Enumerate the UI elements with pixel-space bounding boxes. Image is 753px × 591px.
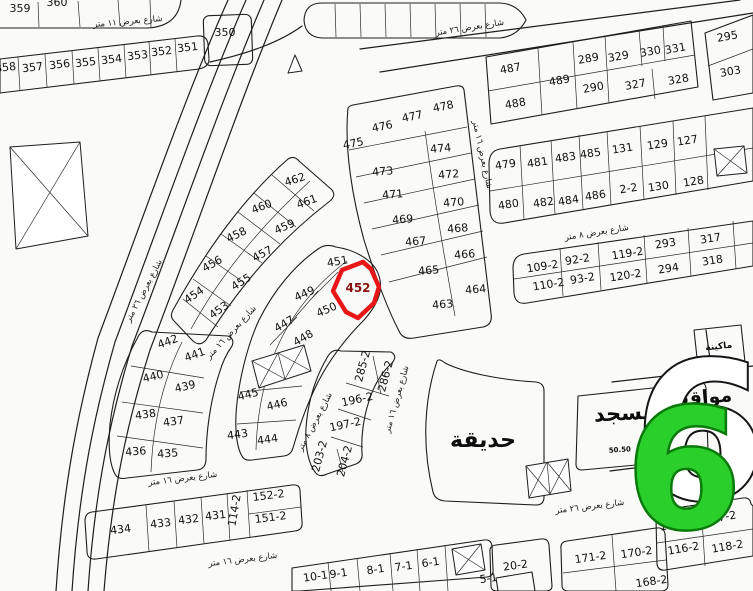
plot-label: 475 — [342, 135, 365, 152]
plot-label: 467 — [405, 234, 427, 249]
plot-label: 443 — [226, 427, 249, 443]
plot-label: 453 — [207, 299, 232, 322]
plot-map[interactable]: 3593603503583573563553543533523514874884… — [0, 0, 753, 591]
plot-label: 481 — [526, 154, 549, 170]
plot-label: 438 — [134, 407, 157, 423]
plot-label: 290 — [582, 79, 605, 95]
plot-label: 331 — [664, 40, 687, 56]
plot-label: 353 — [126, 48, 148, 63]
plot-label: 10-1 — [302, 568, 329, 584]
plot-label: 303 — [719, 63, 742, 79]
plot-label: 9-1 — [329, 566, 349, 581]
plot-label: 293 — [654, 235, 677, 251]
plot-label: 458 — [224, 224, 249, 245]
plot-label: 8-1 — [366, 562, 386, 577]
plot-label: 469 — [392, 212, 414, 227]
district-badge: 6 6 — [627, 322, 753, 566]
plot-label: 460 — [250, 197, 274, 217]
plot-label: 476 — [371, 118, 394, 135]
street-label: شارع بعرض ١٦ متر — [207, 551, 278, 570]
plot-label: 464 — [465, 282, 487, 297]
plot-label: 463 — [432, 297, 454, 312]
plot-label: 129 — [646, 136, 669, 152]
plot-label: 466 — [454, 247, 476, 262]
street-label: شارع بعرض ١٦ متر — [147, 470, 218, 489]
plot-label: 2-2 — [619, 181, 639, 197]
plot-label: 330 — [639, 43, 662, 59]
direction-arrow-icon — [288, 55, 302, 73]
plot-label: 328 — [667, 71, 690, 87]
plot-label: 474 — [430, 141, 452, 156]
plot-label: 6-1 — [421, 555, 441, 570]
district-number: 6 — [627, 374, 742, 566]
plot-label: 294 — [657, 260, 680, 276]
plot-label: 196-2 — [340, 390, 374, 409]
plot-label: 127 — [676, 132, 699, 148]
plot-label: 457 — [250, 243, 275, 264]
selected-plot-number: 452 — [345, 281, 370, 295]
plot-label: 130 — [647, 178, 670, 194]
plot-label: 447 — [272, 313, 297, 335]
plot-label: 480 — [497, 196, 520, 212]
plot-label: 358 — [0, 60, 17, 75]
plot-label: 93-2 — [569, 270, 596, 287]
plot-label: 436 — [125, 444, 147, 458]
plot-label: 152-2 — [252, 487, 285, 504]
plot-label: 356 — [48, 57, 70, 72]
plot-label: 317 — [699, 230, 722, 246]
plot-label: 431 — [204, 508, 226, 523]
plot-label: 446 — [265, 396, 289, 414]
plot-label: 486 — [584, 187, 607, 203]
plot-label: 456 — [200, 253, 225, 275]
utility-plot-marker — [10, 142, 88, 249]
utility-plot-marker — [526, 459, 571, 498]
utility-plot-marker — [452, 544, 485, 575]
plot-label: 432 — [177, 512, 199, 527]
plot-label: 114-2 — [225, 494, 243, 528]
plot-label: 355 — [74, 55, 96, 70]
plot-label: 435 — [157, 446, 179, 460]
plot-label: 472 — [438, 167, 460, 182]
plot-label: 329 — [607, 48, 630, 64]
plot-label: 477 — [401, 108, 424, 125]
plot-label: 487 — [499, 60, 522, 76]
plot-label: 168-2 — [635, 573, 668, 590]
plot-label: 468 — [447, 221, 469, 236]
plot-label: 465 — [418, 263, 440, 278]
plot-label: 286-2 — [375, 359, 396, 393]
plot-label: 360 — [47, 0, 68, 9]
plot-label: 352 — [150, 44, 172, 59]
plot-label: 470 — [443, 195, 465, 210]
area-label: حديقة — [450, 428, 516, 453]
plot-label: 20-2 — [502, 557, 529, 573]
plot-label: 434 — [109, 522, 131, 537]
plot-label: 445 — [236, 386, 260, 404]
plot-label: 442 — [156, 332, 180, 351]
plot-label: 454 — [182, 284, 207, 307]
plot-label: 318 — [701, 252, 724, 268]
plot-label: 437 — [162, 414, 185, 430]
plot-label: 203-2 — [309, 439, 330, 473]
plot-label: 471 — [382, 187, 404, 202]
plot-label: 359 — [10, 2, 31, 15]
plot-label: 327 — [624, 76, 647, 92]
plot-label: 128 — [682, 173, 705, 189]
plot-label: 473 — [372, 164, 394, 179]
cadastral-map-viewport[interactable]: 3593603503583573563553543533523514874884… — [0, 0, 753, 591]
plot-label: 483 — [554, 149, 577, 165]
plot-label: 439 — [173, 378, 197, 396]
plot-label: 289 — [577, 50, 600, 66]
plot-label: 357 — [21, 60, 43, 75]
plot-label: 92-2 — [564, 251, 591, 268]
plot-label: 131 — [611, 140, 634, 156]
plot-label: 285-2 — [352, 349, 373, 383]
street-label: شارع بعرض ١٦ متر — [470, 119, 494, 190]
utility-plot-marker — [252, 345, 311, 388]
plot-label: 350 — [215, 26, 236, 39]
plot-label: 485 — [579, 145, 602, 161]
plot-label: 440 — [141, 368, 165, 386]
plot-label: 462 — [283, 170, 307, 189]
plot-label: 444 — [256, 432, 279, 448]
plot-label: 171-2 — [574, 549, 607, 566]
utility-plot-marker — [714, 146, 747, 176]
plot-label: 7-1 — [394, 559, 414, 574]
plot-label: 354 — [100, 52, 122, 67]
plot-label: 351 — [176, 40, 198, 55]
plot-label: 459 — [272, 217, 296, 237]
plot-label: 120-2 — [609, 267, 643, 285]
plot-label: 5-1 — [479, 571, 499, 586]
plot-label: 488 — [504, 95, 527, 111]
street-label: شارع بعرض ٢٦ متر — [554, 498, 625, 517]
plot-label: 449 — [292, 284, 316, 304]
plot-label: 450 — [314, 300, 338, 320]
plot-label: 479 — [494, 156, 517, 172]
plot-label: 489 — [548, 72, 571, 88]
plot-label: 295 — [716, 28, 739, 44]
plot-label: 461 — [295, 192, 319, 211]
plot-label: 478 — [432, 98, 455, 115]
plot-label: 482 — [532, 194, 555, 210]
plot-label: 197-2 — [328, 415, 362, 434]
plot-label: 484 — [557, 192, 580, 208]
plot-label: 433 — [149, 516, 171, 531]
plot-label: 110-2 — [532, 276, 566, 294]
plot-label: 151-2 — [254, 509, 287, 526]
